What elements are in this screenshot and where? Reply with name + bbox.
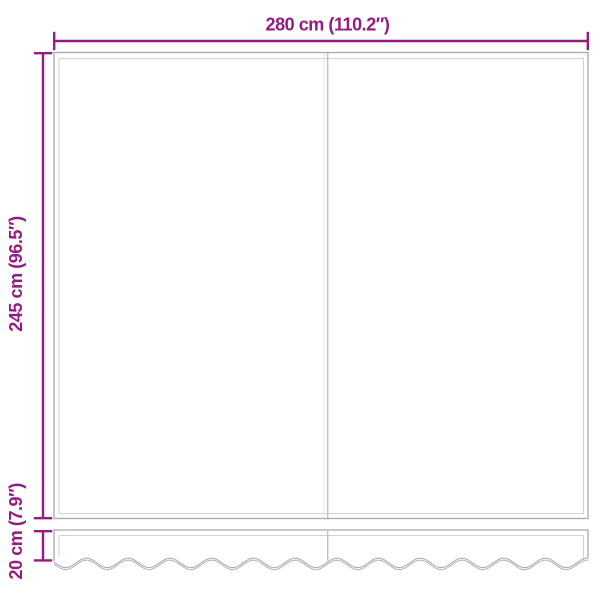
svg-text:245 cm (96.5″): 245 cm (96.5″) [6, 216, 26, 332]
svg-text:20 cm (7.9″): 20 cm (7.9″) [6, 483, 26, 580]
svg-text:280 cm (110.2″): 280 cm (110.2″) [266, 15, 390, 35]
